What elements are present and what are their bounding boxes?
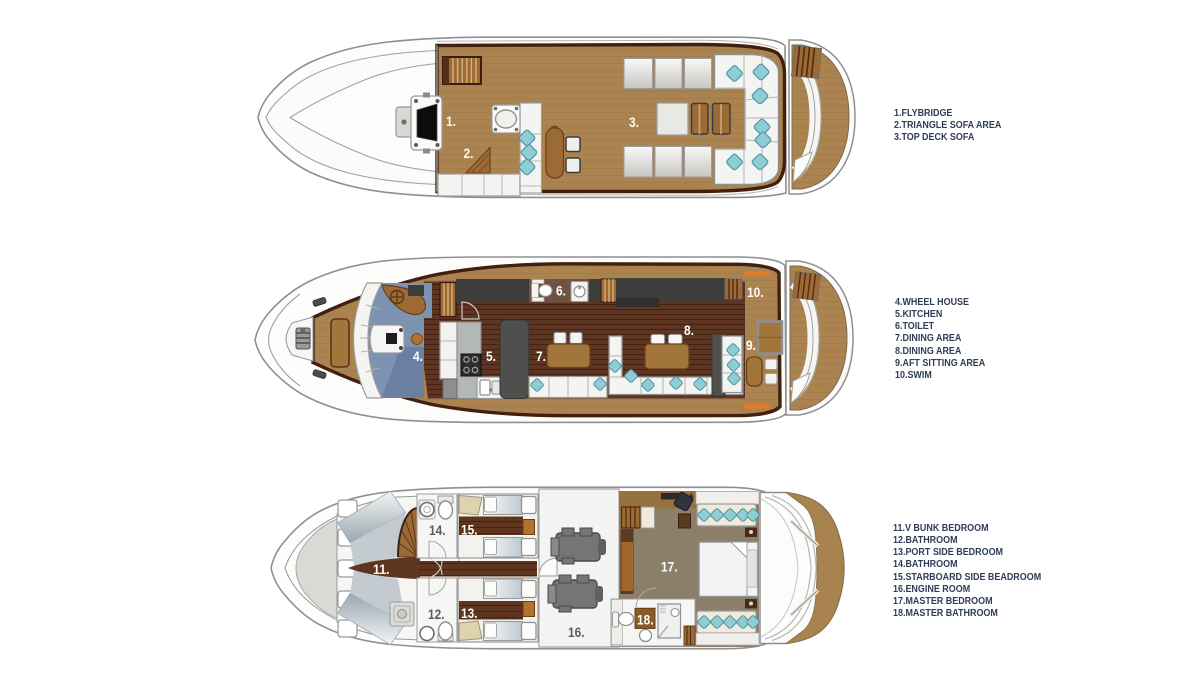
svg-text:4.: 4. xyxy=(413,348,423,364)
svg-text:15.: 15. xyxy=(461,522,478,538)
svg-text:1.: 1. xyxy=(446,113,456,129)
svg-text:8.: 8. xyxy=(684,322,694,338)
svg-text:12.: 12. xyxy=(428,606,445,622)
svg-text:16.: 16. xyxy=(568,624,585,640)
svg-text:3.: 3. xyxy=(629,114,639,130)
svg-text:14.: 14. xyxy=(429,522,446,538)
svg-text:5.: 5. xyxy=(486,348,496,364)
svg-text:18.: 18. xyxy=(637,612,654,628)
svg-text:7.: 7. xyxy=(536,348,546,364)
svg-text:11.: 11. xyxy=(373,561,390,577)
svg-text:13.: 13. xyxy=(461,605,478,621)
svg-text:6.: 6. xyxy=(556,283,566,299)
svg-text:9.: 9. xyxy=(746,337,756,353)
svg-text:2.: 2. xyxy=(464,145,474,161)
svg-text:10.: 10. xyxy=(747,284,764,300)
svg-text:17.: 17. xyxy=(661,559,678,575)
